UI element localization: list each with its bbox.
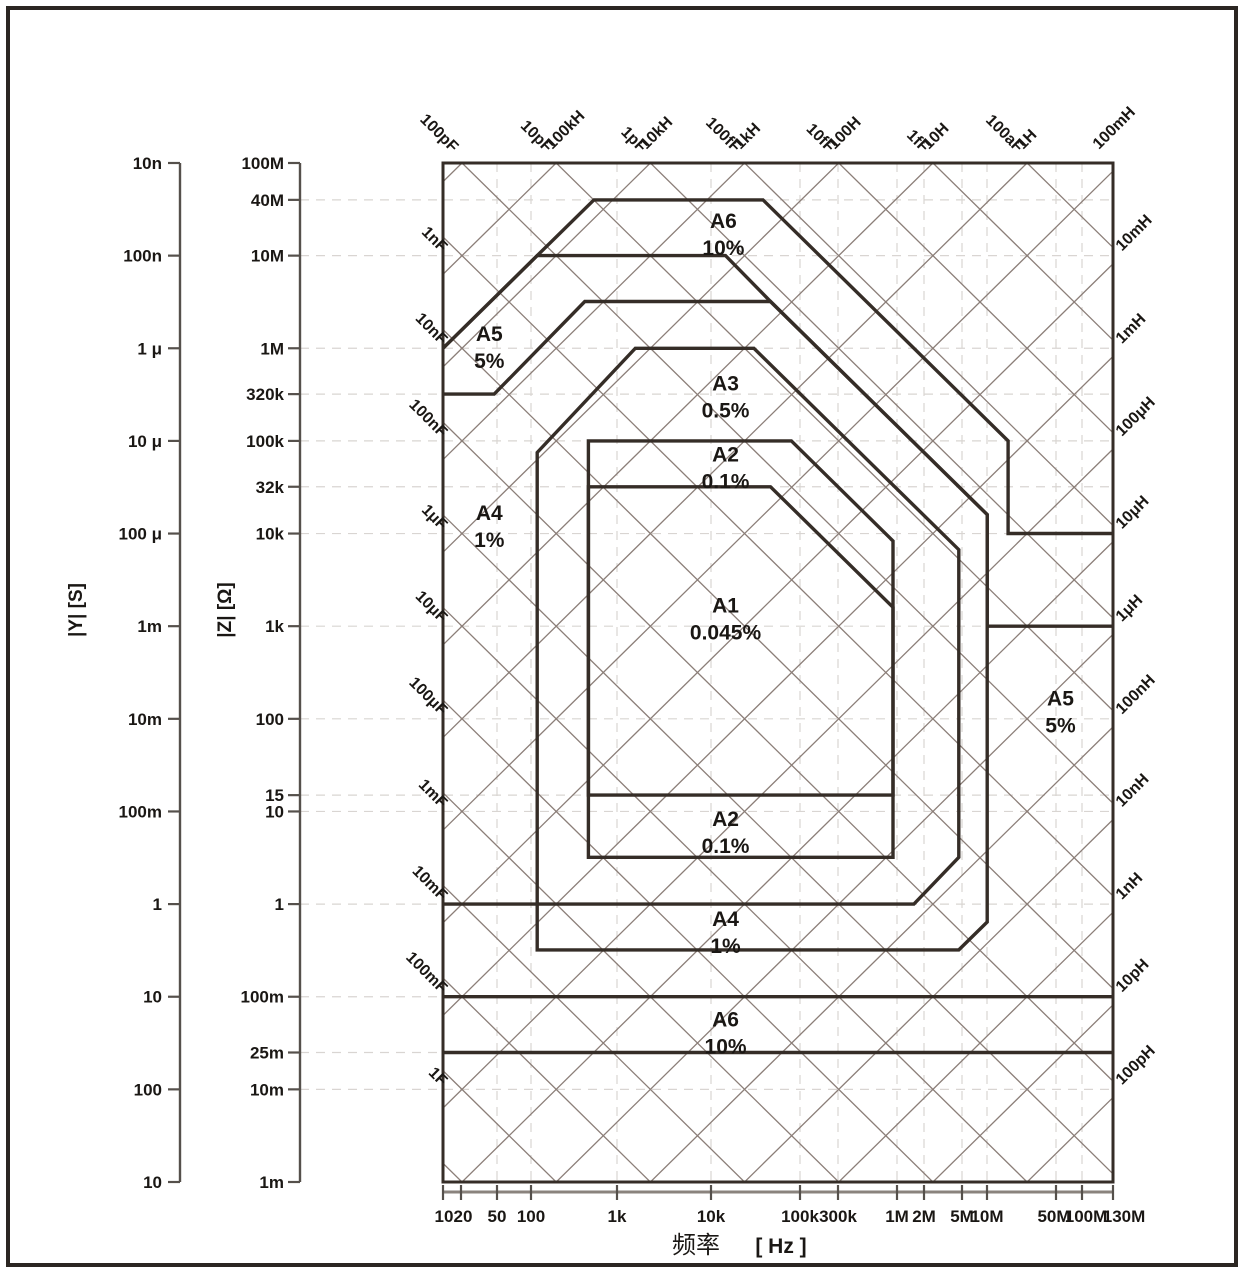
frequency-tick-label: 10 — [435, 1207, 454, 1226]
grid-c-line — [255, 237, 1244, 1256]
grid-c-line — [255, 607, 1244, 1273]
impedance-tick-label: 10k — [256, 525, 285, 544]
left-capacitance-label: 1mF — [415, 776, 450, 811]
admittance-tick-label: 10 — [143, 988, 162, 1007]
impedance-tick-label: 1m — [259, 1173, 284, 1192]
frequency-tick-label: 130M — [1103, 1207, 1146, 1226]
region-label-A3: 0.5% — [702, 400, 750, 423]
right-inductance-label: 10μH — [1113, 493, 1153, 533]
right-inductance-label: 100nH — [1113, 672, 1159, 718]
region-label-A2: A2 — [712, 808, 739, 831]
impedance-tick-label: 10M — [251, 247, 284, 266]
grid-c-line — [255, 52, 1244, 1071]
impedance-accuracy-chart: 10n100n1 μ10 μ100 μ1m10m100m11010010100M… — [0, 0, 1244, 1273]
region-label-A6: 10% — [705, 1035, 747, 1058]
region-label-A4: A4 — [476, 502, 503, 525]
right-inductance-label: 1μH — [1113, 592, 1146, 625]
impedance-tick-label: 100k — [246, 432, 284, 451]
frequency-tick-label: 1M — [885, 1207, 909, 1226]
frequency-tick-label: 100 — [517, 1207, 545, 1226]
impedance-axis-title: |Z| [Ω] — [215, 582, 236, 637]
frequency-tick-label: 10k — [697, 1207, 726, 1226]
frequency-tick-label: 10M — [970, 1207, 1003, 1226]
admittance-tick-label: 10n — [133, 154, 162, 173]
x-axis-title-cn: 频率 — [672, 1232, 720, 1259]
impedance-tick-label: 100m — [241, 988, 284, 1007]
admittance-tick-label: 10 — [143, 1173, 162, 1192]
region-label-A2: 0.1% — [702, 835, 750, 858]
region-label-A3: A3 — [712, 373, 739, 396]
grid-l-line — [255, 182, 1244, 1201]
grid-l-line — [255, 367, 1244, 1273]
grid-c-line — [255, 144, 1244, 1163]
grid-l-line — [255, 552, 1244, 1273]
right-inductance-label: 10mH — [1113, 212, 1156, 255]
left-capacitance-label: 10nF — [412, 310, 451, 349]
region-label-A5: A5 — [1047, 687, 1074, 710]
grid-l-line — [255, 89, 1244, 1108]
top-inductance-label: 100H — [826, 114, 865, 153]
accuracy-chart-page: 10n100n1 μ10 μ100 μ1m10m100m11010010100M… — [0, 0, 1244, 1273]
frequency-tick-label: 50 — [488, 1207, 507, 1226]
region-label-A5: A5 — [476, 323, 503, 346]
region-label-A4: 1% — [474, 529, 505, 552]
admittance-tick-label: 100 μ — [119, 525, 163, 544]
grid-c-line — [255, 0, 1244, 793]
right-inductance-label: 10nH — [1113, 771, 1153, 811]
admittance-tick-label: 100 — [134, 1080, 162, 1099]
edge-value-labels: 100pF10pF1pF100fF10fF1fF100aF100kH10kH1k… — [402, 104, 1158, 1090]
impedance-tick-label: 1 — [275, 895, 284, 914]
axis-rulers: 10n100n1 μ10 μ100 μ1m10m100m11010010100M… — [119, 154, 1146, 1226]
impedance-tick-label: 32k — [256, 478, 285, 497]
grid-c-line — [255, 0, 1244, 607]
admittance-tick-label: 100m — [119, 802, 162, 821]
top-inductance-label: 10kH — [637, 114, 676, 153]
right-inductance-label: 100μH — [1113, 394, 1159, 440]
impedance-tick-label: 10m — [250, 1080, 284, 1099]
grid-c-line — [255, 0, 1244, 422]
frequency-tick-label: 100M — [1065, 1207, 1108, 1226]
impedance-tick-label: 100 — [256, 710, 284, 729]
region-label-A6: A6 — [712, 1008, 739, 1031]
region-label-A4: A4 — [712, 908, 739, 931]
impedance-tick-label: 100M — [241, 154, 284, 173]
frequency-tick-label: 300k — [819, 1207, 857, 1226]
region-A6-boundary — [443, 200, 1113, 534]
right-inductance-label: 1nH — [1113, 870, 1146, 903]
region-label-A5: 5% — [1045, 714, 1076, 737]
grid-l-line — [255, 0, 1244, 367]
region-label-A5: 5% — [474, 350, 505, 373]
region-label-A6: A6 — [710, 210, 737, 233]
region-label-A2: A2 — [712, 443, 739, 466]
region-label-A1: 0.045% — [690, 622, 762, 645]
left-capacitance-label: 1nF — [418, 224, 450, 256]
grid-c-line — [255, 793, 1244, 1273]
grid-c-line — [255, 0, 1244, 700]
right-inductance-label: 1mH — [1113, 311, 1150, 348]
admittance-axis-title: |Y| [S] — [66, 583, 87, 637]
grid-l-line — [255, 460, 1244, 1273]
region-label-A1: A1 — [712, 595, 739, 618]
impedance-tick-label: 320k — [246, 385, 284, 404]
right-inductance-label: 10pH — [1113, 956, 1153, 996]
frequency-tick-label: 20 — [454, 1207, 473, 1226]
impedance-tick-label: 40M — [251, 191, 284, 210]
impedance-tick-label: 25m — [250, 1043, 284, 1062]
impedance-tick-label: 1k — [265, 617, 284, 636]
right-inductance-label: 100pH — [1113, 1042, 1159, 1088]
admittance-tick-label: 10m — [128, 710, 162, 729]
outer-frame — [8, 8, 1236, 1265]
admittance-tick-label: 1m — [137, 617, 162, 636]
admittance-tick-label: 100n — [123, 247, 162, 266]
region-label-A4: 1% — [710, 935, 741, 958]
admittance-tick-label: 1 — [153, 895, 162, 914]
frequency-tick-label: 100k — [781, 1207, 819, 1226]
x-axis-title-unit: [ Hz ] — [755, 1235, 806, 1258]
region-label-A2: 0.1% — [702, 470, 750, 493]
region-label-A6: 10% — [702, 237, 744, 260]
admittance-tick-label: 10 μ — [128, 432, 162, 451]
grid-l-line — [255, 274, 1244, 1273]
admittance-tick-label: 1 μ — [137, 339, 162, 358]
left-capacitance-label: 1μF — [418, 502, 450, 534]
impedance-tick-label: 10 — [265, 802, 284, 821]
top-capacitance-label: 100pF — [416, 111, 461, 156]
impedance-tick-label: 1M — [260, 339, 284, 358]
grid-c-line — [255, 0, 1244, 515]
frequency-tick-label: 1k — [608, 1207, 627, 1226]
grid-l-line — [255, 0, 1244, 552]
top-inductance-label: 100mH — [1090, 104, 1139, 153]
frequency-tick-label: 2M — [912, 1207, 936, 1226]
left-capacitance-label: 10μF — [412, 588, 451, 627]
left-capacitance-label: 1F — [425, 1064, 450, 1089]
top-inductance-label: 100kH — [543, 107, 588, 152]
